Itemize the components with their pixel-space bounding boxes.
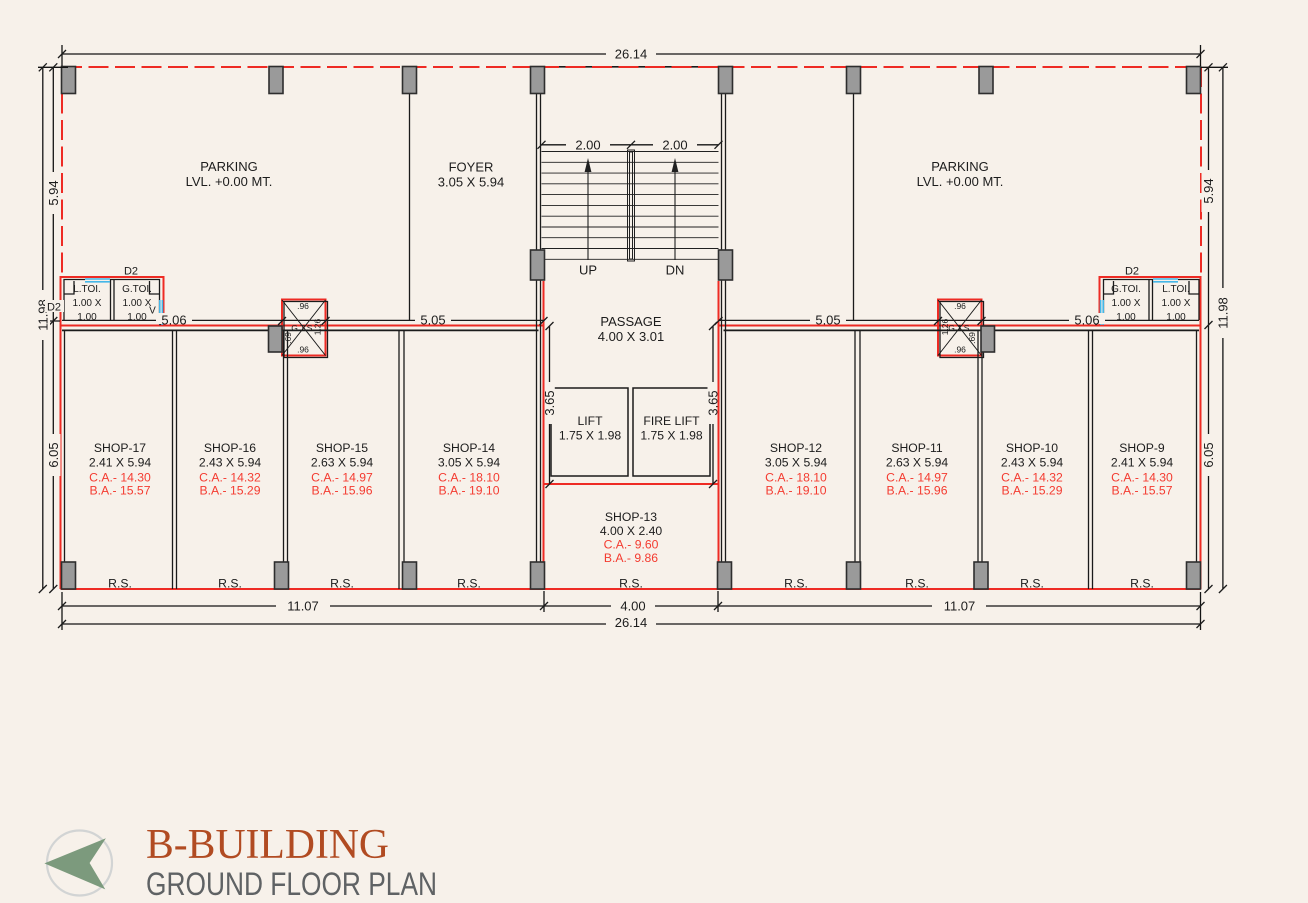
svg-text:R.S.: R.S.	[1130, 577, 1154, 591]
svg-text:5.05: 5.05	[420, 313, 445, 328]
svg-text:B.A.- 19.10: B.A.- 19.10	[439, 484, 500, 498]
svg-text:R.S.: R.S.	[330, 577, 354, 591]
svg-text:4.00 X 3.01: 4.00 X 3.01	[598, 329, 665, 344]
svg-text:2.00: 2.00	[662, 137, 687, 152]
svg-text:5.06: 5.06	[1074, 313, 1099, 328]
svg-text:SHOP-9: SHOP-9	[1119, 441, 1165, 455]
svg-text:PASSAGE: PASSAGE	[600, 314, 662, 329]
svg-text:1.00 X: 1.00 X	[73, 298, 102, 309]
svg-text:C.A.- 18.10: C.A.- 18.10	[438, 471, 500, 485]
svg-text:.69: .69	[967, 332, 977, 344]
svg-text:R.S.: R.S.	[457, 577, 481, 591]
svg-text:11.98: 11.98	[1215, 297, 1230, 329]
svg-text:1.00 X: 1.00 X	[1162, 298, 1191, 309]
svg-text:4.00 X 2.40: 4.00 X 2.40	[600, 524, 663, 538]
svg-text:SHOP-12: SHOP-12	[770, 441, 822, 455]
svg-text:3.05 X 5.94: 3.05 X 5.94	[438, 175, 505, 190]
svg-text:G.TOI.: G.TOI.	[1111, 284, 1141, 295]
svg-text:C.A.- 18.10: C.A.- 18.10	[765, 471, 827, 485]
svg-text:2.41 X 5.94: 2.41 X 5.94	[1111, 456, 1174, 470]
svg-text:1.00: 1.00	[1116, 312, 1136, 323]
svg-text:B.A.- 9.86: B.A.- 9.86	[604, 551, 658, 565]
svg-text:26.14: 26.14	[615, 615, 648, 630]
svg-text:1.00: 1.00	[77, 312, 97, 323]
svg-text:.69: .69	[283, 332, 293, 344]
svg-text:B.A.- 15.57: B.A.- 15.57	[1112, 484, 1173, 498]
svg-text:D2: D2	[1125, 266, 1139, 278]
svg-text:SHOP-11: SHOP-11	[891, 441, 942, 455]
svg-text:5.06: 5.06	[161, 313, 186, 328]
svg-text:L.TOI.: L.TOI.	[1162, 284, 1190, 295]
svg-text:5.05: 5.05	[815, 313, 840, 328]
svg-text:1.00 X: 1.00 X	[1112, 298, 1141, 309]
svg-text:D2: D2	[47, 302, 61, 314]
svg-text:R.S.: R.S.	[784, 577, 808, 591]
svg-text:R.S.: R.S.	[905, 577, 929, 591]
svg-text:3.05 X 5.94: 3.05 X 5.94	[765, 456, 828, 470]
svg-text:SHOP-13: SHOP-13	[605, 510, 657, 524]
svg-text:DN: DN	[666, 263, 685, 278]
svg-text:B.A.- 15.96: B.A.- 15.96	[887, 484, 948, 498]
svg-text:C.A.- 14.30: C.A.- 14.30	[89, 471, 151, 485]
svg-text:6.05: 6.05	[1201, 442, 1216, 467]
svg-text:G.T.S.: G.T.S.	[948, 323, 972, 333]
svg-text:.96: .96	[297, 301, 309, 311]
svg-text:1.26: 1.26	[940, 318, 950, 335]
svg-text:B-BUILDING: B-BUILDING	[146, 822, 389, 868]
svg-text:1.75 X 1.98: 1.75 X 1.98	[559, 429, 622, 443]
svg-text:FIRE LIFT: FIRE LIFT	[643, 414, 700, 428]
svg-text:C.A.- 14.97: C.A.- 14.97	[311, 471, 373, 485]
svg-text:1.00 X: 1.00 X	[123, 298, 152, 309]
svg-text:26.14: 26.14	[615, 47, 648, 62]
svg-text:5.94: 5.94	[46, 180, 61, 205]
svg-text:LVL. +0.00 MT.: LVL. +0.00 MT.	[917, 174, 1004, 189]
svg-text:LIFT: LIFT	[577, 414, 603, 428]
svg-text:G.TOI.: G.TOI.	[122, 284, 152, 295]
svg-text:C.A.- 14.30: C.A.- 14.30	[1111, 471, 1173, 485]
svg-text:B.A.- 15.96: B.A.- 15.96	[312, 484, 373, 498]
svg-text:R.S.: R.S.	[1020, 577, 1044, 591]
svg-text:SHOP-14: SHOP-14	[443, 441, 495, 455]
svg-text:C.A.- 14.32: C.A.- 14.32	[199, 471, 261, 485]
svg-text:4.00: 4.00	[620, 599, 645, 614]
svg-text:D2: D2	[124, 266, 138, 278]
svg-text:R.S.: R.S.	[108, 577, 132, 591]
svg-text:LVL. +0.00 MT.: LVL. +0.00 MT.	[186, 174, 273, 189]
svg-text:2.63 X 5.94: 2.63 X 5.94	[311, 456, 374, 470]
svg-text:2.43 X 5.94: 2.43 X 5.94	[199, 456, 262, 470]
svg-text:.96: .96	[297, 345, 309, 355]
svg-text:B.A.- 15.29: B.A.- 15.29	[1002, 484, 1063, 498]
svg-text:V: V	[149, 306, 156, 317]
svg-text:2.41 X 5.94: 2.41 X 5.94	[89, 456, 152, 470]
svg-text:SHOP-17: SHOP-17	[94, 441, 146, 455]
svg-text:B.A.- 19.10: B.A.- 19.10	[766, 484, 827, 498]
svg-text:3.65: 3.65	[542, 390, 557, 415]
svg-text:R.S.: R.S.	[218, 577, 242, 591]
svg-text:GROUND FLOOR PLAN: GROUND FLOOR PLAN	[146, 866, 437, 902]
svg-text:2.43 X 5.94: 2.43 X 5.94	[1001, 456, 1064, 470]
svg-text:3.65: 3.65	[706, 390, 721, 415]
svg-text:1.00: 1.00	[127, 312, 147, 323]
svg-text:6.05: 6.05	[46, 442, 61, 467]
svg-text:L.TOI.: L.TOI.	[73, 284, 101, 295]
svg-text:C.A.- 14.97: C.A.- 14.97	[886, 471, 948, 485]
svg-text:11.07: 11.07	[944, 599, 976, 614]
svg-text:PARKING: PARKING	[931, 159, 989, 174]
svg-text:FOYER: FOYER	[449, 160, 494, 175]
svg-text:2.00: 2.00	[575, 137, 600, 152]
svg-text:.96: .96	[954, 301, 966, 311]
svg-text:UP: UP	[579, 263, 597, 278]
svg-text:5.94: 5.94	[1201, 178, 1216, 203]
svg-text:SHOP-15: SHOP-15	[316, 441, 368, 455]
svg-text:G.T.S.: G.T.S.	[291, 323, 315, 333]
svg-text:SHOP-10: SHOP-10	[1006, 441, 1058, 455]
svg-text:11.07: 11.07	[287, 599, 319, 614]
svg-text:PARKING: PARKING	[200, 159, 258, 174]
svg-text:R.S.: R.S.	[619, 577, 643, 591]
svg-text:C.A.- 14.32: C.A.- 14.32	[1001, 471, 1063, 485]
svg-text:.96: .96	[954, 345, 966, 355]
svg-text:2.63 X 5.94: 2.63 X 5.94	[886, 456, 949, 470]
svg-text:B.A.- 15.29: B.A.- 15.29	[200, 484, 261, 498]
svg-text:1.00: 1.00	[1166, 312, 1186, 323]
svg-text:1.26: 1.26	[313, 318, 323, 335]
svg-text:C.A.- 9.60: C.A.- 9.60	[604, 538, 659, 552]
svg-text:1.75 X 1.98: 1.75 X 1.98	[640, 429, 703, 443]
svg-text:SHOP-16: SHOP-16	[204, 441, 256, 455]
svg-text:3.05 X 5.94: 3.05 X 5.94	[438, 456, 501, 470]
svg-text:B.A.- 15.57: B.A.- 15.57	[90, 484, 151, 498]
